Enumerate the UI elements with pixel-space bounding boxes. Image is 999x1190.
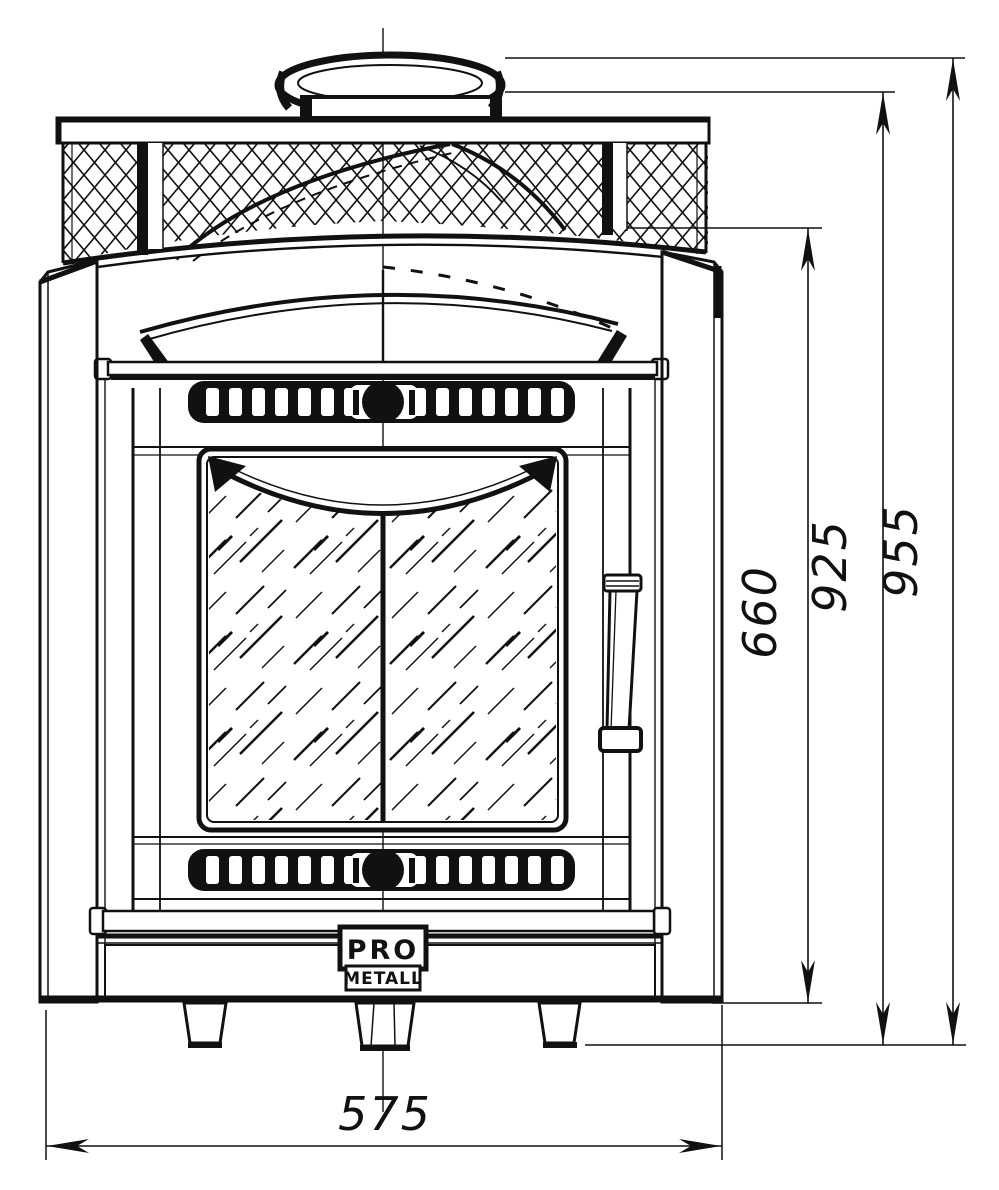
- collar-base-band: [306, 97, 496, 118]
- logo-badge: PRO METALL: [340, 927, 426, 990]
- chimney-collar: [278, 55, 502, 119]
- upper-air-vent: [188, 381, 575, 423]
- dim-575-label: 575: [338, 1087, 432, 1141]
- logo-text-metall: METALL: [343, 969, 423, 989]
- dim-955-label: 955: [874, 504, 928, 598]
- dim-660-label: 660: [733, 565, 787, 659]
- cage-post-left: [137, 143, 163, 255]
- ledge-band: [108, 362, 657, 375]
- top-plate: [57, 118, 709, 143]
- rail-right-cap: [654, 908, 670, 934]
- logo-text-pro: PRO: [347, 935, 420, 966]
- cage-post-right: [602, 143, 627, 235]
- handle-bottom-pad: [600, 728, 641, 751]
- side-panel-right: [662, 252, 722, 1002]
- side-panel-left: [40, 260, 97, 1002]
- drawing-sheet: PRO METALL 575 660 925: [0, 0, 999, 1190]
- lower-air-vent: [188, 849, 575, 891]
- stove-front-view-drawing: PRO METALL 575 660 925: [0, 0, 999, 1190]
- leg-left: [184, 1003, 226, 1045]
- handle-top-cap: [604, 575, 641, 591]
- collar-base-left-cap: [300, 95, 312, 119]
- dim-925-label: 925: [803, 519, 857, 613]
- fire-door: [150, 400, 620, 870]
- leg-center: [356, 1003, 414, 1048]
- leg-right: [539, 1003, 580, 1045]
